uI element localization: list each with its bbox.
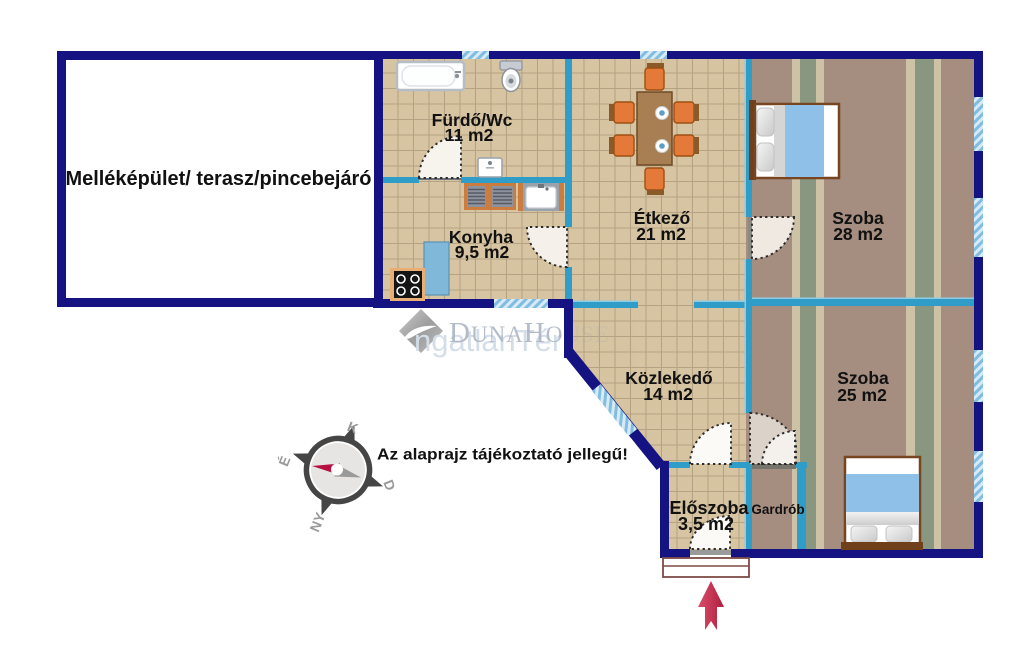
svg-text:3,5 m2: 3,5 m2 — [678, 514, 734, 534]
svg-text:11 m2: 11 m2 — [445, 125, 494, 145]
svg-text:Az alaprajz tájékoztató jelleg: Az alaprajz tájékoztató jellegű! — [377, 447, 628, 464]
svg-text:28 m2: 28 m2 — [833, 224, 883, 244]
svg-text:21 m2: 21 m2 — [636, 224, 686, 244]
svg-text:Melléképület/ terasz/pincebejá: Melléképület/ terasz/pincebejáró — [66, 168, 372, 190]
svg-text:9,5 m2: 9,5 m2 — [455, 242, 510, 262]
svg-text:Gardrób: Gardrób — [751, 502, 804, 517]
svg-text:14 m2: 14 m2 — [643, 384, 693, 404]
svg-text:25 m2: 25 m2 — [837, 385, 887, 405]
